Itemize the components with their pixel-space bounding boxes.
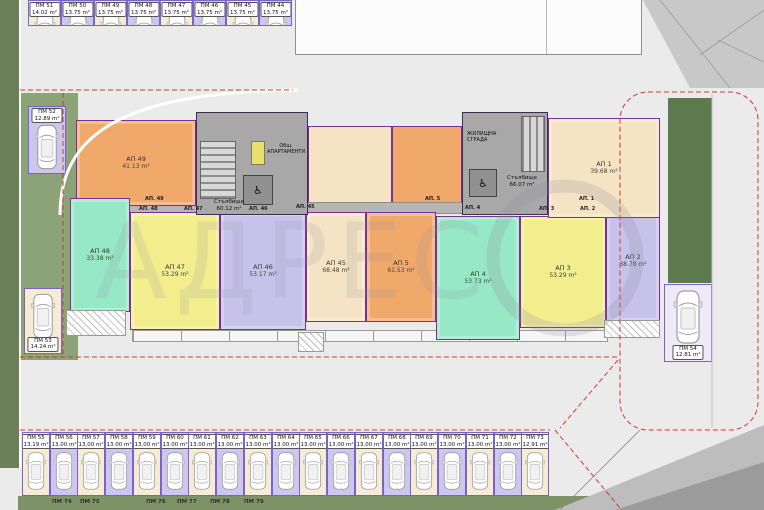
- car-icon: [359, 448, 380, 494]
- green-strip-left: [0, 0, 20, 468]
- parking-stall: ПМ 6013.00 m²: [161, 432, 189, 496]
- car-icon: [525, 448, 546, 494]
- car-icon: [109, 448, 130, 494]
- car-icon: [673, 289, 703, 345]
- adjacent-building-outline: [295, 0, 642, 55]
- car-icon: [470, 448, 491, 494]
- car-icon: [192, 448, 213, 494]
- gray-wedge-bottom-right: [615, 462, 764, 510]
- apartment-label: АП 453.73 m²: [464, 270, 491, 286]
- apartment-45-upper-block: [308, 126, 392, 214]
- apartment-label: АП 4833.38 m²: [86, 247, 113, 263]
- common-area-label: Общ. АПАРТАМЕНТИ: [265, 143, 307, 155]
- terrace-label: АП. 45: [296, 204, 315, 210]
- stairs-icon: [200, 141, 236, 199]
- parking-stall: ПМ 5212.89 m²: [28, 106, 66, 174]
- building-divider-line: [546, 0, 547, 54]
- car-icon: [331, 448, 352, 494]
- parking-stall: ПМ 7013.00 m²: [438, 432, 466, 496]
- apartment-label: АП 353.29 m²: [549, 264, 576, 280]
- apartment-1: АП 4941.13 m²: [76, 120, 196, 206]
- terrace-label: АП. 46: [249, 206, 268, 212]
- car-icon: [387, 448, 408, 494]
- parking-stall-label: ПМ 4413.75 m²: [260, 2, 291, 17]
- apartment-label: АП 561.53 m²: [387, 259, 414, 275]
- parking-next-row-label: ПМ 74: [52, 499, 72, 505]
- car-icon: [359, 448, 380, 494]
- car-icon: [81, 448, 102, 494]
- apartment-label: АП 4941.13 m²: [122, 155, 149, 171]
- parking-next-row-label: ПМ 78: [210, 499, 230, 505]
- parking-stall-label: ПМ 6413.00 m²: [272, 434, 300, 449]
- parking-stall-label: ПМ 4813.75 m²: [128, 2, 159, 17]
- apartment-7: АП 453.73 m²: [436, 216, 520, 340]
- car-icon: [35, 122, 60, 172]
- parking-stall: ПМ 7312.91 m²: [521, 432, 549, 496]
- car-icon: [303, 448, 324, 494]
- car-icon: [414, 448, 435, 494]
- parking-stall-label: ПМ 4913.75 m²: [95, 2, 126, 17]
- car-icon: [54, 448, 75, 494]
- parking-stall: ПМ 7113.00 m²: [466, 432, 494, 496]
- terrace-label: АП. 5: [425, 196, 440, 202]
- parking-stall-label: ПМ 4513.75 m²: [227, 2, 258, 17]
- apartment-10: АП 139.68 m²: [548, 118, 660, 218]
- parking-stall: ПМ 6113.00 m²: [188, 432, 216, 496]
- car-icon: [35, 122, 60, 172]
- stairwell-core-right: ЖИЛИЩНА СГРАДА ♿ Стълбище 66.07 m²: [462, 112, 548, 215]
- car-icon: [165, 448, 186, 494]
- parking-stall: ПМ 5713.00 m²: [77, 432, 105, 496]
- car-icon: [31, 292, 56, 340]
- green-strip-bottom: [18, 496, 622, 510]
- parking-stall-label: ПМ 6713.00 m²: [355, 434, 383, 449]
- car-icon: [26, 448, 47, 494]
- parking-stall-label: ПМ 5613.00 m²: [50, 434, 78, 449]
- parking-stall-label: ПМ 6913.00 m²: [410, 434, 438, 449]
- parking-stall: ПМ 6713.00 m²: [355, 432, 383, 496]
- apartment-8: АП 353.29 m²: [520, 216, 606, 328]
- parking-stall-label: ПМ 5013.75 m²: [62, 2, 93, 17]
- parking-stall-label: ПМ 5713.00 m²: [77, 434, 105, 449]
- car-icon: [498, 448, 519, 494]
- parking-stall: ПМ 4413.75 m²: [259, 0, 292, 26]
- terrace-label: АП. 1: [579, 196, 594, 202]
- parking-stall: ПМ 6513.00 m²: [299, 432, 327, 496]
- parking-stall: ПМ 6313.00 m²: [244, 432, 272, 496]
- car-icon: [525, 448, 546, 494]
- parking-stall-label: ПМ 7312.91 m²: [521, 434, 549, 449]
- car-icon: [81, 448, 102, 494]
- apartment-label: АП 238.78 m²: [619, 253, 646, 269]
- parking-stall-label: ПМ 5913.00 m²: [133, 434, 161, 449]
- apartment-9: АП 238.78 m²: [606, 200, 660, 322]
- stair-right-label: Стълбище 66.07 m²: [497, 175, 547, 188]
- parking-stall: ПМ 5613.00 m²: [50, 432, 78, 496]
- car-icon: [137, 448, 158, 494]
- parking-stall: ПМ 4913.75 m²: [94, 0, 127, 26]
- stairs-icon: [521, 116, 545, 172]
- car-icon: [165, 448, 186, 494]
- terrace-label: АП. 47: [184, 206, 203, 212]
- parking-next-row-label: ПМ 75: [80, 499, 100, 505]
- parking-stall-label: ПМ 6213.00 m²: [216, 434, 244, 449]
- parking-stall: ПМ 5412.81 m²: [664, 284, 712, 362]
- apartment-label: АП 4753.29 m²: [161, 263, 188, 279]
- parking-stall: ПМ 5114.02 m²: [28, 0, 61, 26]
- terrace-hatched-right: [604, 320, 660, 338]
- car-icon: [276, 448, 297, 494]
- parking-stall-label: ПМ 4713.75 m²: [161, 2, 192, 17]
- parking-stall-label: ПМ 5412.81 m²: [672, 345, 703, 360]
- apartment-6: АП 561.53 m²: [366, 212, 436, 322]
- parking-stall-label: ПМ 5212.89 m²: [31, 108, 62, 123]
- parking-stall-label: ПМ 6013.00 m²: [161, 434, 189, 449]
- car-icon: [414, 448, 435, 494]
- parking-next-row-label: ПМ 79: [244, 499, 264, 505]
- parking-stall: ПМ 6613.00 m²: [327, 432, 355, 496]
- stair-right-name: Стълбище: [507, 175, 537, 181]
- car-icon: [192, 448, 213, 494]
- parking-stall: ПМ 6913.00 m²: [410, 432, 438, 496]
- stair-left-area: 60.12 m²: [216, 206, 241, 212]
- car-icon: [442, 448, 463, 494]
- site-plan: ♿ Общ. АПАРТАМЕНТИ Стълбище 60.12 m² ЖИЛ…: [0, 0, 764, 510]
- terrace-label: АП. 2: [580, 206, 595, 212]
- terrace-label: АП. 48: [139, 206, 158, 212]
- car-icon: [137, 448, 158, 494]
- mailbox-icon: [251, 141, 265, 165]
- apartment-label: АП 4568.48 m²: [322, 259, 349, 275]
- terrace-label: АП. 3: [539, 206, 554, 212]
- apartment-5: АП 4568.48 m²: [306, 212, 366, 322]
- parking-next-row-label: ПМ 76: [146, 499, 166, 505]
- stair-left-name: Стълбище: [214, 199, 244, 205]
- gray-area-top-right: [643, 0, 764, 88]
- apartment-2: АП 4833.38 m²: [70, 198, 130, 312]
- apartment-4: АП 4653.17 m²: [220, 212, 306, 330]
- apartment-3: АП 4753.29 m²: [130, 212, 220, 330]
- green-lawn-right: [668, 98, 712, 283]
- parking-stall-label: ПМ 6613.00 m²: [327, 434, 355, 449]
- elevator-wheelchair-icon: ♿: [469, 169, 497, 197]
- car-icon: [31, 292, 56, 340]
- terrace-label: АП. 4: [465, 205, 480, 211]
- parking-stall: ПМ 4513.75 m²: [226, 0, 259, 26]
- parking-stall-label: ПМ 6813.00 m²: [383, 434, 411, 449]
- car-icon: [248, 448, 269, 494]
- parking-stall-label: ПМ 7013.00 m²: [438, 434, 466, 449]
- stair-right-area: 66.07 m²: [509, 182, 534, 188]
- parking-stall-label: ПМ 5813.00 m²: [105, 434, 133, 449]
- parking-stall: ПМ 5913.00 m²: [133, 432, 161, 496]
- parking-stall: ПМ 7213.00 m²: [494, 432, 522, 496]
- parking-stall: ПМ 6213.00 m²: [216, 432, 244, 496]
- car-icon: [54, 448, 75, 494]
- parking-stall: ПМ 5813.00 m²: [105, 432, 133, 496]
- parking-stall-label: ПМ 6113.00 m²: [188, 434, 216, 449]
- entrance-walkway: [298, 332, 324, 352]
- car-icon: [248, 448, 269, 494]
- terrace-label: АП. 49: [145, 196, 164, 202]
- apartment-label: АП 4653.17 m²: [249, 263, 276, 279]
- parking-stall: ПМ 6413.00 m²: [272, 432, 300, 496]
- parking-stall: ПМ 4613.75 m²: [193, 0, 226, 26]
- parking-stall-label: ПМ 7213.00 m²: [494, 434, 522, 449]
- parking-stall: ПМ 6813.00 m²: [383, 432, 411, 496]
- stairwell-core-left: ♿ Общ. АПАРТАМЕНТИ Стълбище 60.12 m²: [196, 112, 308, 215]
- parking-next-row-label: ПМ 77: [177, 499, 197, 505]
- parking-stall: ПМ 4713.75 m²: [160, 0, 193, 26]
- car-icon: [442, 448, 463, 494]
- car-icon: [303, 448, 324, 494]
- car-icon: [331, 448, 352, 494]
- wheelchair-glyph: ♿: [478, 177, 488, 190]
- parking-stall-label: ПМ 5513.19 m²: [22, 434, 50, 449]
- balcony-strip: [132, 330, 608, 342]
- car-icon: [220, 448, 241, 494]
- parking-stall-label: ПМ 5314.24 m²: [27, 337, 58, 352]
- parking-stall: ПМ 5314.24 m²: [24, 288, 62, 354]
- apartment-label: АП 139.68 m²: [590, 160, 617, 176]
- car-icon: [26, 448, 47, 494]
- parking-stall-label: ПМ 4613.75 m²: [194, 2, 225, 17]
- car-icon: [470, 448, 491, 494]
- parking-stall-label: ПМ 7113.00 m²: [466, 434, 494, 449]
- parking-stall: ПМ 5013.75 m²: [61, 0, 94, 26]
- parking-stall: ПМ 4813.75 m²: [127, 0, 160, 26]
- building-name-label: ЖИЛИЩНА СГРАДА: [467, 131, 513, 143]
- car-icon: [673, 289, 703, 345]
- terrace-hatched-left: [66, 310, 126, 336]
- parking-stall-label: ПМ 6513.00 m²: [299, 434, 327, 449]
- parking-stall-label: ПМ 6313.00 m²: [244, 434, 272, 449]
- parking-stall: ПМ 5513.19 m²: [22, 432, 50, 496]
- car-icon: [109, 448, 130, 494]
- wheelchair-glyph: ♿: [253, 184, 263, 197]
- car-icon: [387, 448, 408, 494]
- parking-stall-label: ПМ 5114.02 m²: [29, 2, 60, 17]
- car-icon: [498, 448, 519, 494]
- car-icon: [276, 448, 297, 494]
- car-icon: [220, 448, 241, 494]
